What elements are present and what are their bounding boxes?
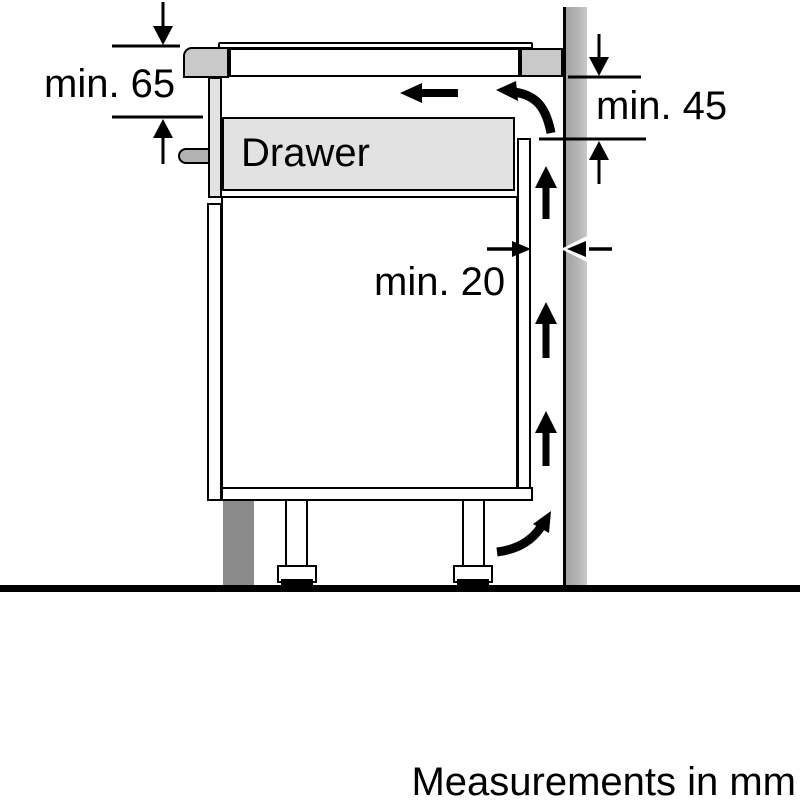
cabinet-interior	[221, 196, 518, 489]
drawer-label: Drawer	[241, 119, 370, 188]
airflow-up-arrow-2	[535, 302, 557, 358]
wall	[563, 7, 587, 585]
airflow-up-arrow-3	[535, 411, 557, 466]
arrow-up-icon	[153, 119, 173, 164]
hob-body	[229, 48, 520, 77]
arrow-down-icon	[589, 34, 609, 76]
worktop-rear-edge	[520, 48, 563, 77]
cabinet-leg-right	[462, 499, 485, 567]
cabinet-front-panel-lower	[207, 203, 222, 501]
label-min20: min. 20	[374, 260, 505, 305]
hob-glass-top	[218, 42, 533, 49]
arrow-up-icon	[589, 141, 609, 184]
floor-line	[0, 585, 800, 592]
foot-pad-right	[457, 579, 489, 586]
worktop-front-edge	[183, 47, 229, 78]
airflow-curve-bottom	[497, 511, 551, 552]
cabinet-front-panel-upper	[208, 77, 222, 198]
cabinet-leg-left	[285, 499, 308, 567]
hob-connection-tab	[178, 148, 210, 164]
foot-pad-left	[281, 579, 313, 586]
plinth-panel	[223, 500, 254, 585]
installation-diagram: Drawer	[0, 0, 800, 800]
label-min65: min. 65	[44, 62, 175, 107]
airflow-left-arrow	[400, 83, 458, 103]
cabinet-back-panel	[517, 138, 531, 489]
measurements-note: Measurements in mm	[411, 760, 796, 800]
airflow-up-arrow-1	[535, 166, 557, 219]
cabinet-bottom-panel	[221, 487, 533, 501]
arrow-down-icon	[153, 2, 173, 45]
label-min45: min. 45	[596, 84, 727, 129]
drawer-box: Drawer	[222, 117, 515, 191]
